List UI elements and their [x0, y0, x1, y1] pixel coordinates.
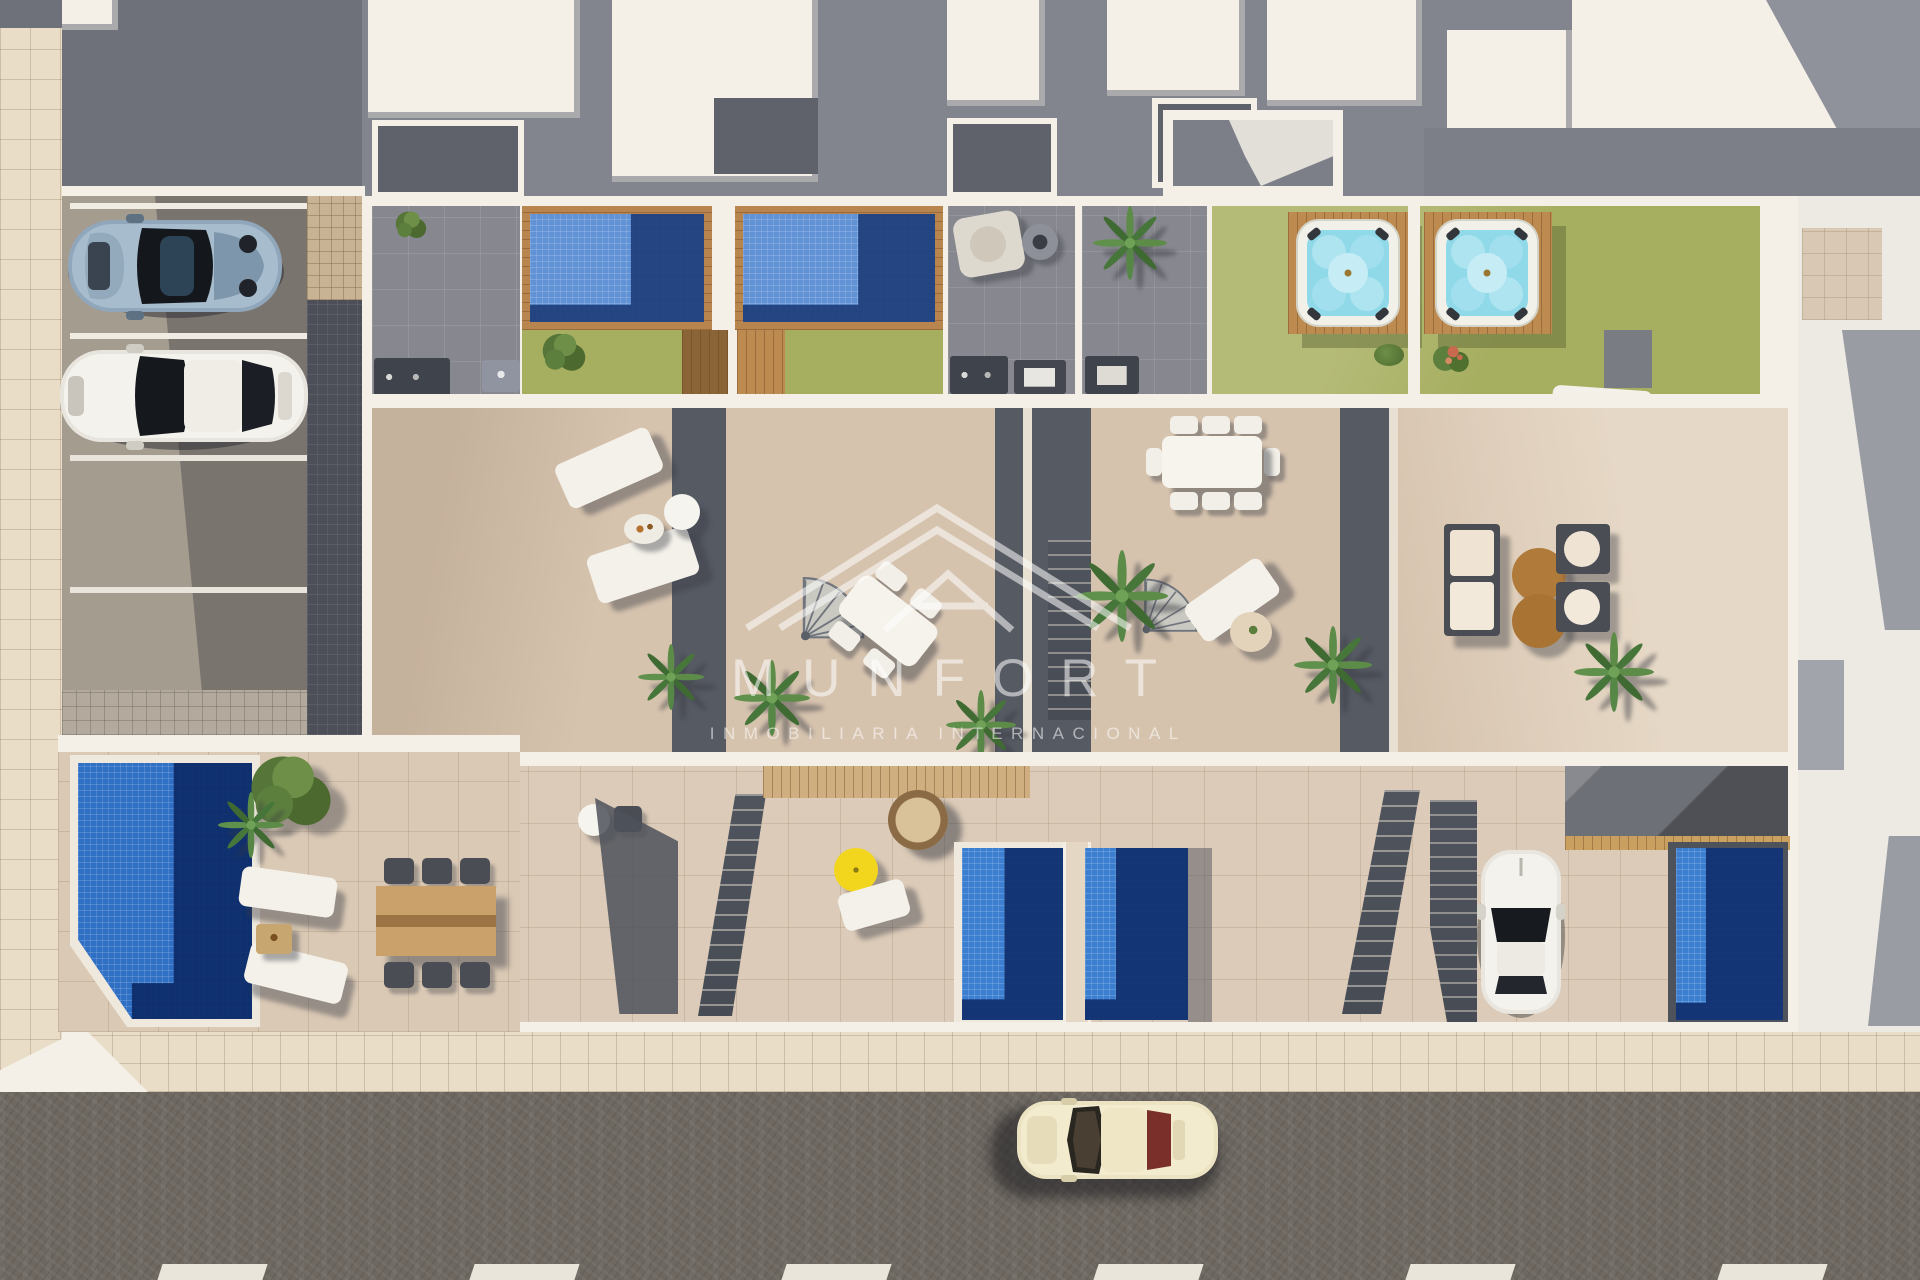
- sidewalk-left: [0, 28, 62, 1070]
- ground-pool-b-shadow: [1085, 848, 1188, 1020]
- dining-chair: [1146, 448, 1162, 476]
- garden-side-table: [256, 924, 292, 954]
- unit4-palm: [1572, 632, 1656, 712]
- unit1-palm: [636, 644, 706, 710]
- neighbor-courtyard-a: [372, 120, 524, 198]
- unit2-kitchen-counter: [950, 356, 1008, 394]
- lane-marking-5: [1405, 1264, 1515, 1280]
- unit4-upper-patio: [1565, 766, 1788, 836]
- parked-white-sedan: [56, 342, 314, 452]
- aerial-render-scene: MUNFORT INMOBILIARIA INTERNACIONAL: [0, 0, 1920, 1280]
- unit1-drink-table: [664, 494, 700, 530]
- dining-chair: [1264, 448, 1280, 476]
- rooftop-pool-2-shadow: [743, 214, 935, 322]
- curb-line: [55, 186, 365, 196]
- garden-chair: [422, 858, 452, 884]
- neighbor-shadow-2: [1798, 660, 1844, 770]
- dining-chair: [1234, 416, 1262, 434]
- sofa-cushion: [1450, 582, 1494, 630]
- lane-marking-6: [1717, 1264, 1827, 1280]
- terrace-ground-wall: [372, 752, 1788, 766]
- rooftop-pool-1-water: [530, 214, 704, 322]
- lawn-right-wall: [1760, 206, 1798, 398]
- unit1-lawn-tree: [532, 326, 596, 382]
- lane-marking-4: [1093, 1264, 1203, 1280]
- unit1-bbq-counter: [374, 358, 450, 396]
- unit1-tray-table: [624, 514, 664, 544]
- dining-chair: [1234, 492, 1262, 510]
- dining-chair: [1170, 492, 1198, 510]
- daybed-cushion: [967, 223, 1009, 265]
- egg-chair: [888, 790, 948, 850]
- neighbor-courtyard-b: [714, 98, 818, 174]
- sofa-cushion: [1450, 530, 1494, 576]
- armchair-cushion: [1564, 531, 1600, 567]
- lane-marking-3: [781, 1264, 891, 1280]
- neighbor-roof-c: [947, 0, 1045, 106]
- fire-pit-table: [1022, 224, 1058, 260]
- sidewalk-bottom: [0, 1032, 1920, 1092]
- neighbor-shadow-1: [1842, 330, 1920, 630]
- jacuzzi-1: [1295, 218, 1401, 328]
- rooftop-pool-2-water: [743, 214, 935, 322]
- passage-2-wall: [1023, 408, 1032, 752]
- lawn-dark-notch: [1604, 330, 1652, 388]
- garden-chair: [460, 858, 490, 884]
- unit2-wood-walkway: [763, 766, 1030, 798]
- lawn-shrub: [1374, 344, 1404, 366]
- neighbor-roof-d: [1107, 0, 1245, 96]
- parked-sports-car: [64, 212, 288, 322]
- garden-chair: [384, 962, 414, 988]
- unit1-patio-tree: [390, 206, 432, 246]
- dining-chair: [1170, 416, 1198, 434]
- unit3-patio-palm: [1090, 206, 1170, 280]
- neighbor-roof-e: [1267, 0, 1422, 106]
- neighbor-roof-a: [368, 0, 580, 118]
- dark-paving-strip: [307, 300, 362, 735]
- neighbor-terrace-square: [1802, 228, 1882, 320]
- armchair-cushion: [1564, 589, 1600, 625]
- neighbor-shadow-3: [1868, 836, 1920, 1026]
- unit2-palm-right: [944, 690, 1018, 760]
- rose-bush: [1424, 336, 1480, 381]
- unit2-palm-left: [732, 660, 812, 736]
- ground-pool-c-shadow: [1676, 848, 1783, 1020]
- driveway-white-car: [1475, 846, 1567, 1018]
- garden-palm: [216, 792, 286, 858]
- garden-chair: [460, 962, 490, 988]
- unit3-dining-table: [1162, 436, 1262, 488]
- dining-chair: [1202, 416, 1230, 434]
- dining-chair: [1202, 492, 1230, 510]
- neighboring-buildings: [0, 0, 1920, 196]
- lane-marking-2: [469, 1264, 579, 1280]
- unit2-lawn: [785, 330, 943, 398]
- neighbor-gray-band: [1424, 128, 1920, 196]
- unit1-shower-pad: [482, 360, 520, 392]
- jacuzzi-divider-wall: [1408, 206, 1420, 398]
- garden-chair: [384, 858, 414, 884]
- unit4-armchair-2: [1556, 582, 1610, 632]
- unit2-deck-steps: [737, 330, 785, 398]
- building-bottom-wall: [372, 1022, 1788, 1032]
- unit2-counter-2: [1014, 360, 1066, 394]
- unit1-deck-steps: [682, 330, 728, 398]
- unit4-sofa: [1444, 524, 1500, 636]
- ground-pool-a: [962, 848, 1063, 1020]
- unit3-palm-big: [1074, 550, 1170, 642]
- daybed: [951, 209, 1026, 280]
- ground-pool-a-shadow: [962, 848, 1063, 1020]
- ground-pool-b: [1085, 848, 1188, 1020]
- ground-pool-c: [1676, 848, 1783, 1020]
- neighbor-right-column: [1798, 196, 1920, 1032]
- pool-b-edge-shadow: [1188, 848, 1212, 1024]
- street: [0, 1092, 1920, 1280]
- garden-chair: [422, 962, 452, 988]
- rooftop-pool-1-shadow: [530, 214, 704, 322]
- unit3-side-table: [1230, 612, 1272, 652]
- jacuzzi-2: [1434, 218, 1540, 328]
- street-car: [1015, 1096, 1220, 1184]
- neighbor-courtyard-c: [947, 118, 1057, 198]
- brick-walkway: [307, 196, 362, 300]
- lane-marking-1: [157, 1264, 267, 1280]
- passage-3-wall: [1389, 408, 1398, 752]
- unit3-palm-small: [1292, 626, 1374, 704]
- entry-court-frame: [1163, 110, 1343, 196]
- neighbor-roof-small: [62, 0, 118, 30]
- garden-dining-table: [376, 886, 496, 956]
- unit4-armchair-1: [1556, 524, 1610, 574]
- amenity-terrace-wall: [372, 394, 1788, 408]
- unit3-kitchen-counter: [1085, 356, 1139, 394]
